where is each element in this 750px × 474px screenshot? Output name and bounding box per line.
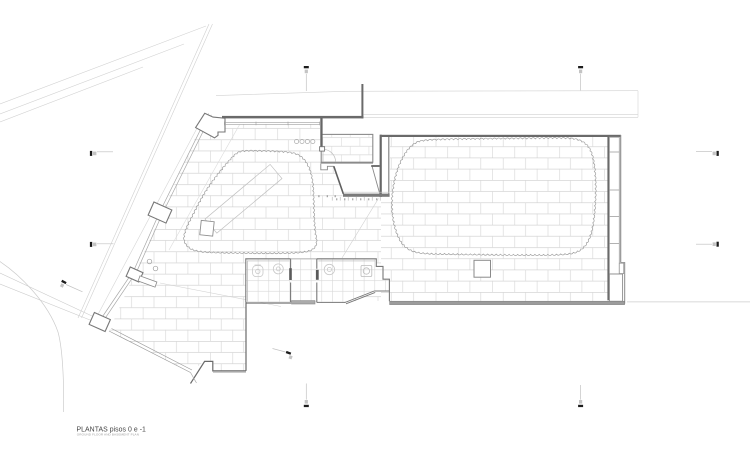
svg-text:GROUND FLOOR AND BASEMENT PLAN: GROUND FLOOR AND BASEMENT PLAN [77,433,139,437]
